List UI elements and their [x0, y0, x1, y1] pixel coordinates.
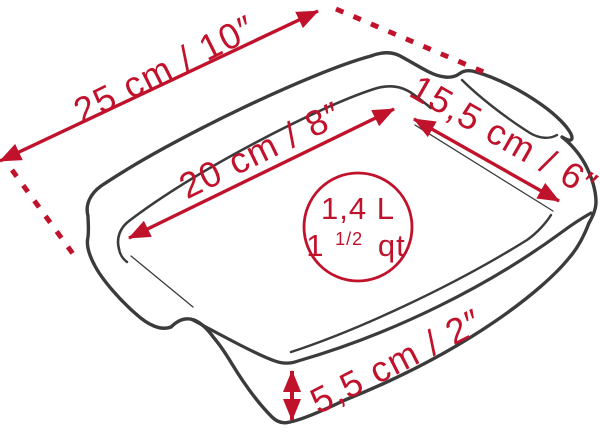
- capacity-liters: 1,4 L: [321, 191, 395, 226]
- dish-dimension-diagram: 25 cm / 10″ 20 cm / 8″ 15,5 cm / 6″ 5,5 …: [0, 0, 600, 433]
- capacity-quarts-fraction: 1/2: [335, 229, 363, 249]
- diagram-canvas: 25 cm / 10″ 20 cm / 8″ 15,5 cm / 6″ 5,5 …: [0, 0, 600, 433]
- capacity-quarts-whole: 1: [306, 228, 324, 263]
- capacity-quarts-unit: qt: [378, 228, 406, 263]
- projection-dash-bottom-left: [12, 170, 76, 258]
